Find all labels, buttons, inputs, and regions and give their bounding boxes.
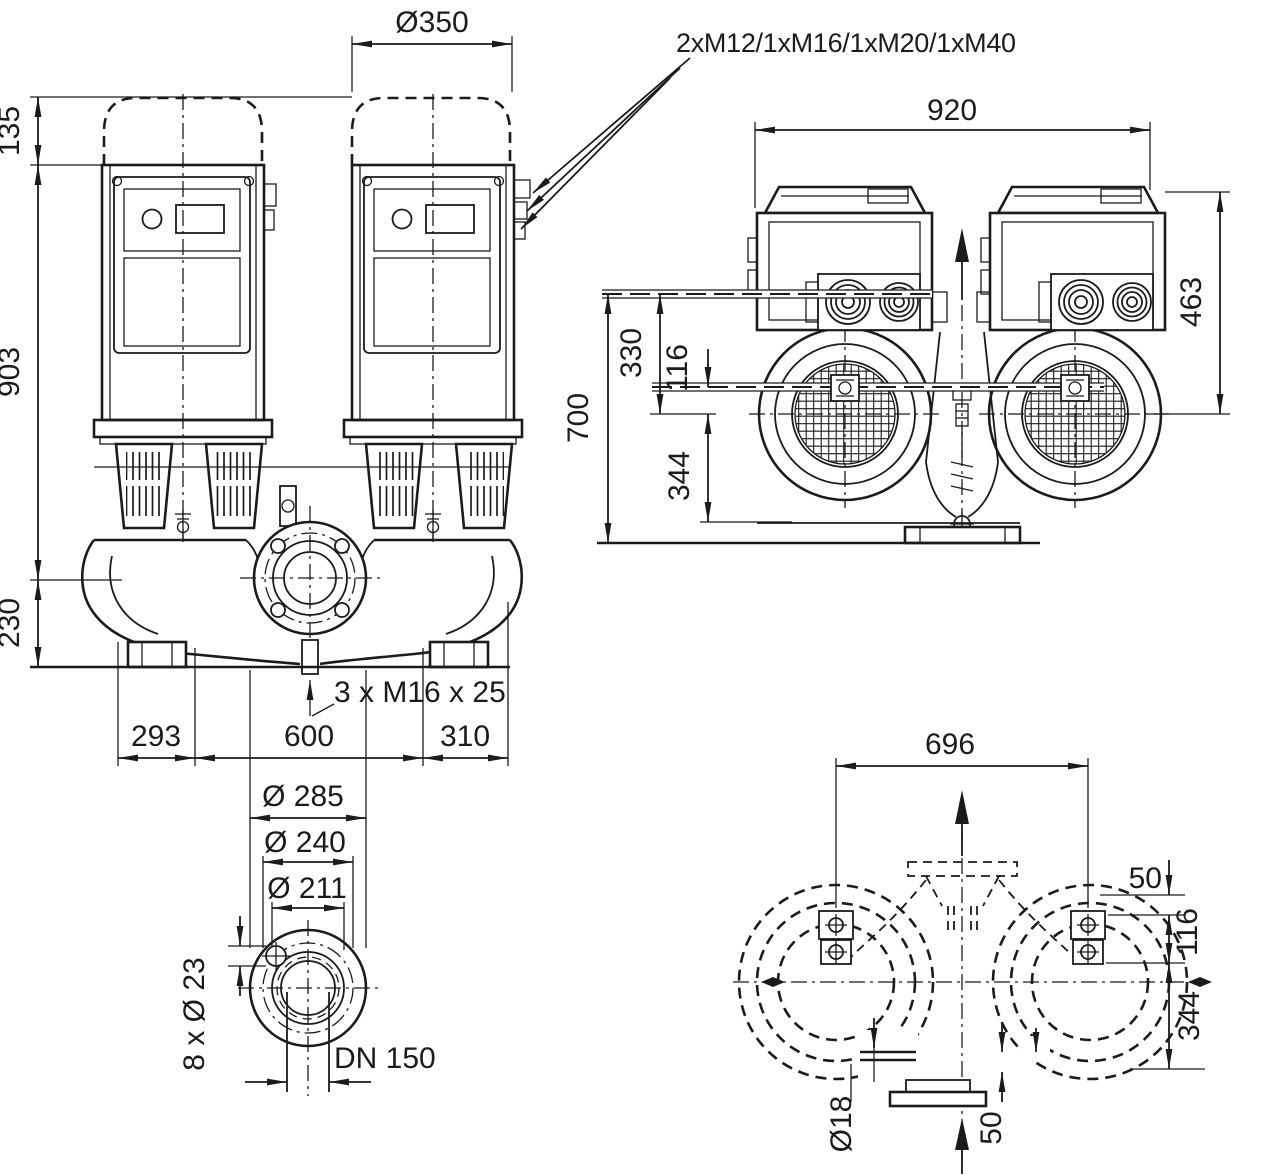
- motor-fan: [979, 326, 1171, 508]
- technical-drawing-page: 135 903 230 Ø350 2xM12/1xM16/1xM20/1xM40…: [0, 0, 1280, 1175]
- reference-stripe: [652, 383, 1104, 391]
- plug-callout: 3 x M16 x 25: [310, 676, 506, 716]
- plan-view-dimensions: 696 50 116 344 Ø18 50: [825, 728, 1206, 1152]
- dim-gland-330: 330: [615, 294, 660, 414]
- dim-label-d350: Ø350: [395, 6, 468, 39]
- dim-base-height: 230: [0, 580, 38, 667]
- flow-direction-arrow: [955, 228, 969, 300]
- dim-label-344-plan: 344: [1173, 991, 1206, 1041]
- centerline-tick: [761, 977, 785, 987]
- foot-bolt-pad: [819, 911, 853, 964]
- box-cap: [765, 187, 925, 213]
- dim-label-116: 116: [661, 344, 694, 392]
- pump-foot: [128, 642, 186, 667]
- dim-label-dn150: DN 150: [334, 1042, 436, 1075]
- plug-label: 3 x M16 x 25: [334, 676, 506, 709]
- cable-gland-callout: 2xM12/1xM16/1xM20/1xM40: [521, 28, 1016, 229]
- dim-motor-height: 903: [0, 165, 38, 580]
- slot-detail: [858, 1018, 1050, 1084]
- dim-label-d240: Ø 240: [264, 826, 346, 859]
- pump-foot: [430, 642, 488, 667]
- dim-label-50-bottom: 50: [975, 1111, 1008, 1144]
- dim-label-344: 344: [663, 451, 696, 501]
- dim-cap-height: 135: [0, 97, 38, 165]
- dim-overall-700: 700: [562, 294, 608, 543]
- dim-label-463: 463: [1175, 277, 1208, 327]
- pump-dimensional-drawing: 135 903 230 Ø350 2xM12/1xM16/1xM20/1xM40…: [0, 0, 1280, 1175]
- dim-label-920: 920: [927, 94, 977, 127]
- foot-bolt-pad: [1071, 911, 1105, 964]
- dim-label-903: 903: [0, 347, 26, 397]
- dim-label-8xd23: 8 x Ø 23: [178, 957, 211, 1070]
- dim-bolt-holes: 8 x Ø 23: [178, 916, 266, 1071]
- dim-label-50-top: 50: [1129, 862, 1162, 895]
- box-cap: [998, 187, 1158, 213]
- dim-motor-diameter: Ø350: [352, 6, 512, 92]
- cable-entry: [514, 202, 527, 219]
- cable-entry: [514, 222, 525, 239]
- dim-foot-50: 50: [975, 1022, 1008, 1145]
- dim-label-d285: Ø 285: [262, 780, 344, 813]
- terminal-faceplate: [114, 177, 250, 353]
- dim-label-310: 310: [440, 720, 490, 753]
- dim-label-116-plan: 116: [1171, 908, 1204, 956]
- dim-label-d211: Ø 211: [267, 872, 347, 905]
- dim-edge-50: 50: [1129, 860, 1169, 895]
- dim-label-230: 230: [0, 598, 26, 648]
- dim-foot-344: 344: [663, 414, 708, 522]
- dim-label-d18: Ø18: [825, 1096, 858, 1153]
- dim-bolt-spacing-116: 116: [1169, 908, 1204, 963]
- base-foot: [905, 527, 1020, 543]
- plan-view: [733, 790, 1212, 1174]
- motor-fan: [749, 326, 941, 508]
- dim-label-293: 293: [131, 720, 181, 753]
- dim-nominal-bore: DN 150: [245, 1042, 436, 1082]
- dim-flange-outer: Ø 285: [250, 780, 366, 818]
- suction-flange: [240, 486, 380, 674]
- centerline-tick: [1188, 977, 1212, 987]
- dim-label-600: 600: [284, 720, 334, 753]
- cable-gland-label: 2xM12/1xM16/1xM20/1xM40: [676, 28, 1016, 58]
- front-view: [30, 94, 530, 674]
- terminal-faceplate: [364, 177, 500, 353]
- motor-cap-dashed: [352, 98, 510, 165]
- cable-entry: [514, 180, 530, 198]
- dim-label-135: 135: [0, 106, 26, 156]
- reference-stripe: [602, 290, 932, 298]
- dim-label-330: 330: [615, 328, 648, 378]
- dim-label-700: 700: [562, 393, 595, 443]
- dim-label-696: 696: [925, 728, 975, 761]
